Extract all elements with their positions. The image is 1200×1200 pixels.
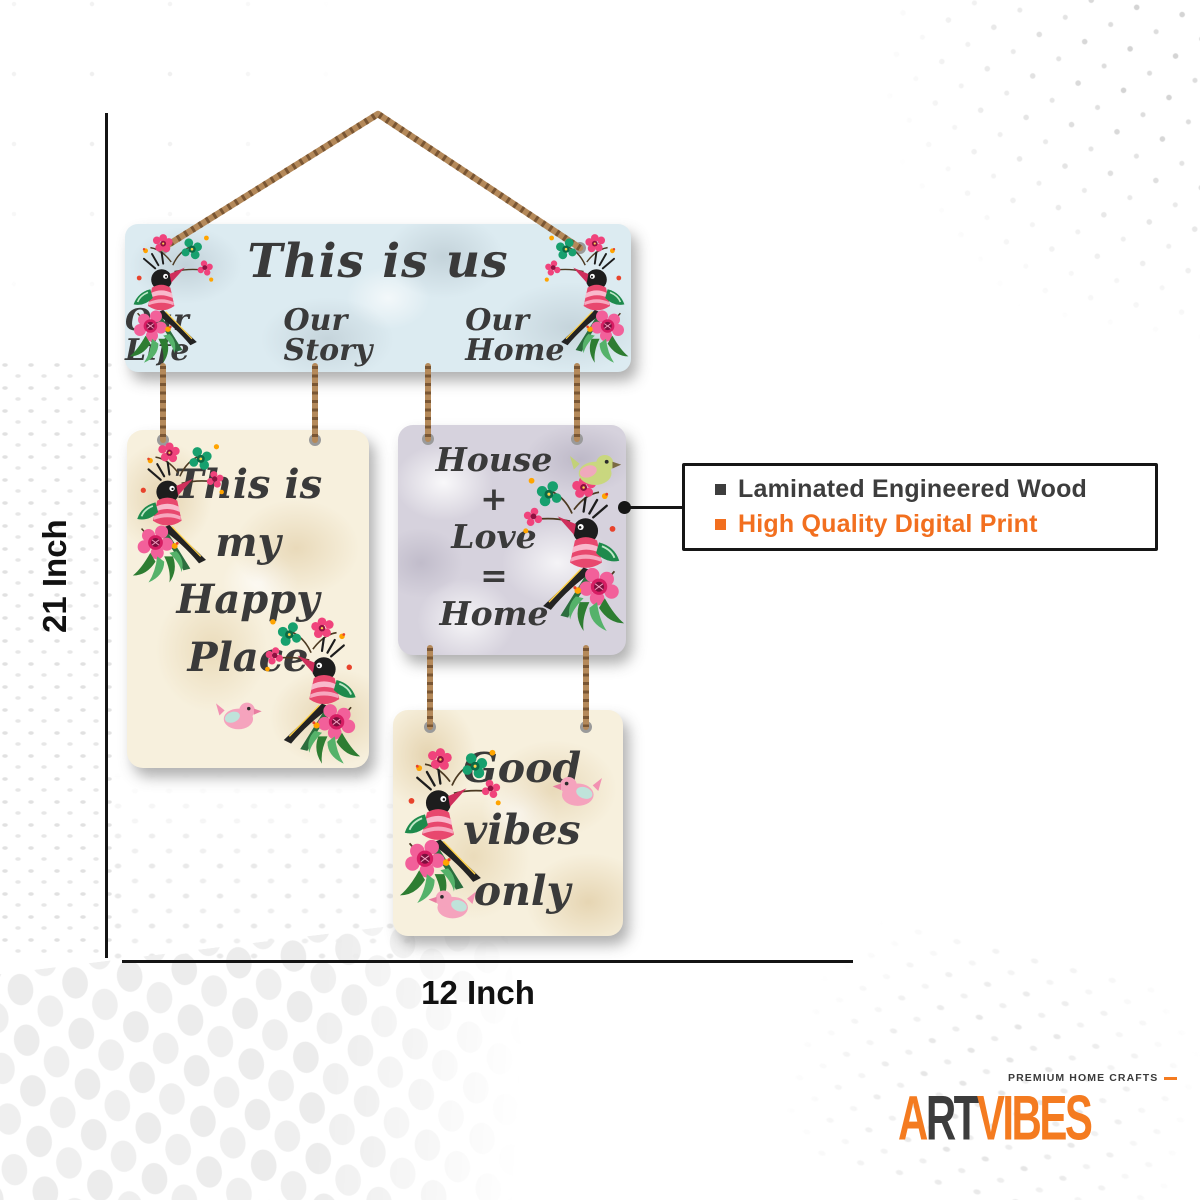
plaque-line: my — [127, 514, 369, 572]
plaque-subtitle-our-home: Our Home — [465, 306, 631, 366]
width-dimension-label: 12 Inch — [398, 974, 558, 1012]
brand-letter-a: A — [898, 1083, 926, 1154]
width-dimension-line — [122, 960, 853, 963]
height-dimension-line — [105, 113, 108, 958]
plaque-line: Good — [429, 738, 615, 800]
brand-logo: PREMIUM HOME CRAFTS ARTVIBES — [898, 1072, 1177, 1129]
plaque-happy-place: This is my Happy Place — [127, 430, 369, 768]
plaque-subtitle-our-life: Our Life — [125, 306, 258, 366]
callout-item-label: Laminated Engineered Wood — [738, 475, 1087, 504]
tagline-dash — [1164, 1077, 1177, 1080]
product-infographic: 21 Inch 12 Inch This is us Our Life Our … — [0, 0, 1200, 1200]
bullet-square-icon — [715, 484, 726, 495]
material-callout-box: Laminated Engineered Wood High Quality D… — [682, 463, 1158, 551]
plaque-line: Love — [418, 518, 570, 557]
brand-letters-vibes: VIBES — [977, 1083, 1091, 1154]
halftone-dots-mid-bottom — [112, 770, 412, 960]
plaque-line: Happy — [127, 571, 369, 629]
plaque-subtitle-our-story: Our Story — [284, 306, 440, 366]
plaque-line: only — [429, 861, 615, 923]
callout-leader-line — [625, 506, 684, 509]
plaque-house-love-home: House + Love = Home — [398, 425, 626, 655]
plaque-line: House — [418, 441, 570, 480]
halftone-dots-bottom-right — [776, 905, 1200, 1200]
plaque-line: This is — [127, 456, 369, 514]
plaque-this-is-us: This is us Our Life Our Story Our Home — [125, 224, 631, 372]
plaque-line: Place — [127, 629, 369, 687]
polka-dots-bottom-left — [0, 912, 541, 1200]
halftone-dots-top-right — [852, 0, 1200, 356]
plaque-line: = — [418, 557, 570, 596]
bullet-square-icon — [715, 519, 726, 530]
plaque-line: Home — [418, 595, 570, 634]
plaque-good-vibes-only: Good vibes only — [393, 710, 623, 936]
callout-item-label: High Quality Digital Print — [738, 510, 1038, 539]
plaque-line: vibes — [429, 800, 615, 862]
plaque-line: + — [418, 480, 570, 519]
callout-item-print: High Quality Digital Print — [715, 510, 1145, 539]
brand-letters-rt: RT — [926, 1083, 977, 1154]
height-dimension-label: 21 Inch — [36, 478, 74, 674]
callout-item-material: Laminated Engineered Wood — [715, 475, 1145, 504]
brand-wordmark: ARTVIBES — [898, 1087, 1177, 1150]
plaque-title: This is us — [125, 238, 631, 285]
